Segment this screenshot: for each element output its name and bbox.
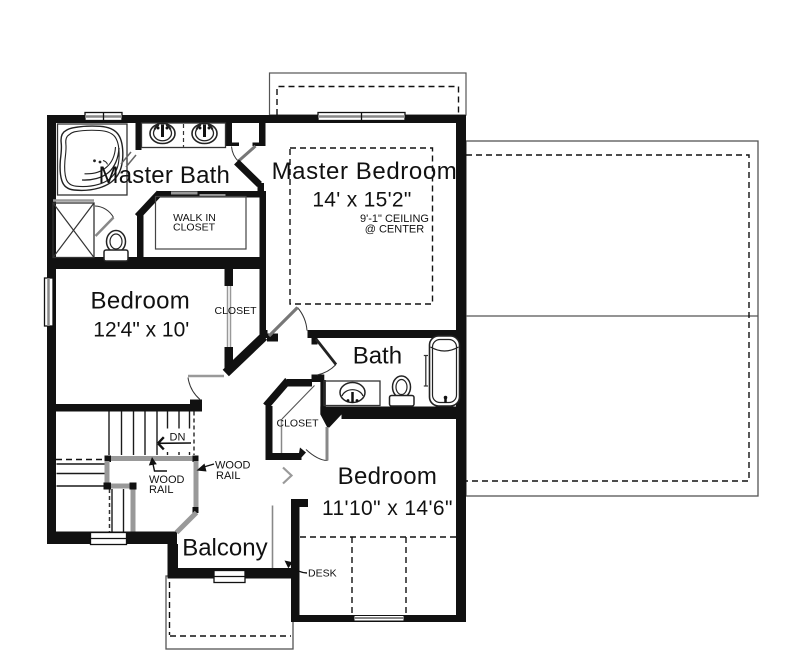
svg-text:Master Bedroom: Master Bedroom xyxy=(272,158,458,185)
svg-text:Bedroom: Bedroom xyxy=(338,463,437,490)
svg-text:Master Bath: Master Bath xyxy=(99,162,231,189)
svg-text:DESK: DESK xyxy=(308,568,337,580)
svg-text:Bedroom: Bedroom xyxy=(91,288,190,315)
svg-text:CLOSET: CLOSET xyxy=(173,222,216,234)
svg-text:CLOSET: CLOSET xyxy=(276,418,319,430)
svg-text:@ CENTER: @ CENTER xyxy=(365,224,425,236)
svg-text:Bath: Bath xyxy=(353,343,402,370)
svg-text:DN: DN xyxy=(170,432,186,444)
svg-text:RAIL: RAIL xyxy=(149,484,173,496)
svg-text:CLOSET: CLOSET xyxy=(214,305,257,317)
svg-text:11'10" x 14'6": 11'10" x 14'6" xyxy=(322,497,453,520)
svg-text:14' x 15'2": 14' x 15'2" xyxy=(312,189,411,212)
svg-text:12'4" x 10': 12'4" x 10' xyxy=(93,319,189,342)
svg-text:RAIL: RAIL xyxy=(216,470,240,482)
svg-text:Balcony: Balcony xyxy=(182,535,267,562)
